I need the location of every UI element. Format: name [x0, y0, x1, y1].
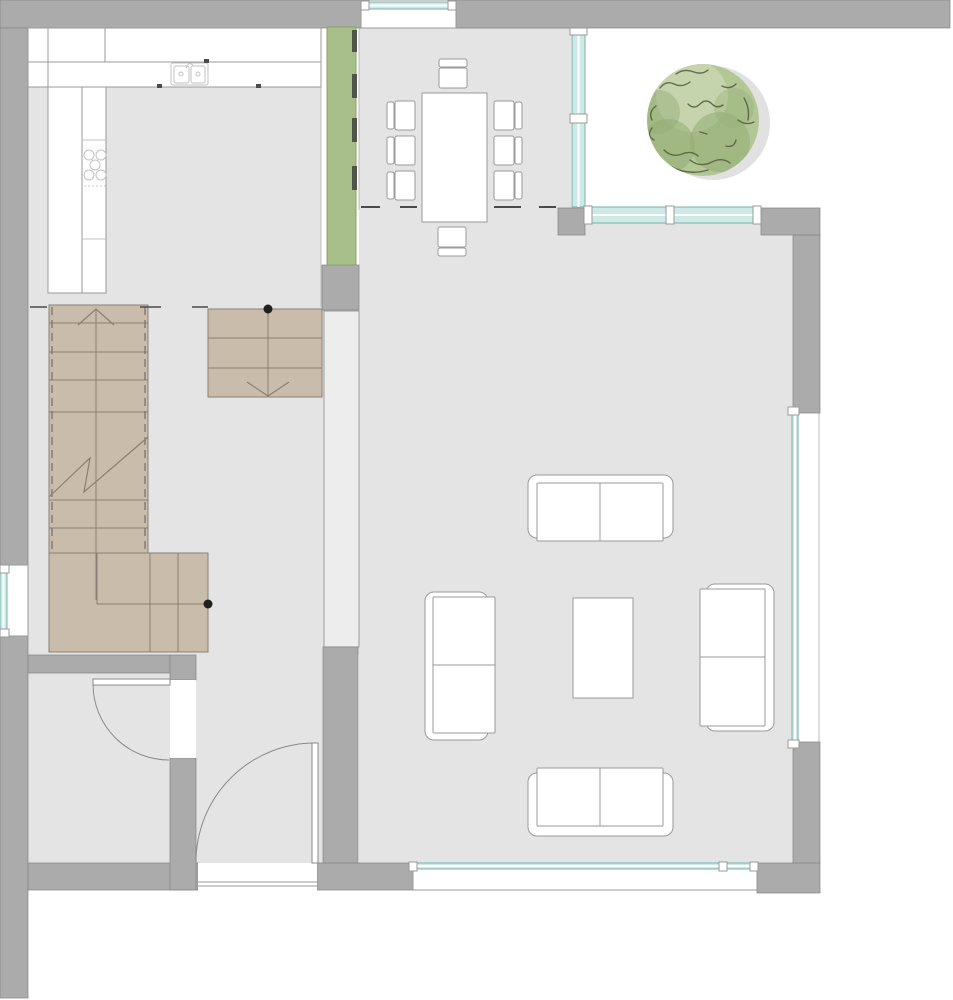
- chair-back: [438, 248, 466, 256]
- chair-seat: [395, 171, 415, 200]
- cooktop-dot: [92, 185, 94, 187]
- wall-storeroom-top: [28, 655, 170, 673]
- wall-storeroom-right-up: [170, 655, 196, 680]
- green-wall-tick: [352, 74, 357, 98]
- wall-dining-corner: [558, 208, 585, 235]
- store-room-floor: [28, 673, 170, 863]
- entry-hall-floor: [196, 655, 323, 883]
- door-storeroom-leaf: [93, 679, 170, 685]
- cooktop-dot: [104, 185, 106, 187]
- chair-seat: [395, 101, 415, 130]
- window-patio-post: [584, 206, 592, 224]
- wall-left-lower: [0, 632, 28, 998]
- green-wall-tick: [352, 30, 357, 52]
- window-left-post: [0, 565, 9, 573]
- window-left-post: [0, 629, 9, 637]
- cooktop-dot: [96, 185, 98, 187]
- walkline-dot: [204, 600, 213, 609]
- chair-seat: [494, 171, 514, 200]
- wall-green-base: [322, 265, 359, 310]
- green-wall-tick: [352, 166, 357, 190]
- glass-wall-living-post: [788, 740, 799, 748]
- green-wall-tick: [352, 118, 357, 142]
- window-top-post: [361, 1, 369, 10]
- chair-seat: [395, 136, 415, 165]
- wall-storeroom-right-low: [170, 758, 196, 890]
- dining-chair: [494, 171, 522, 200]
- sink-basin: [191, 66, 205, 83]
- wall-bottom-hall: [317, 863, 413, 890]
- dining-chair: [387, 101, 415, 130]
- kitchen-counter-row: [28, 28, 321, 62]
- green-wall: [327, 27, 356, 265]
- window-bottom-post: [409, 862, 417, 871]
- cooktop-dot: [88, 185, 90, 187]
- dining-chair: [494, 136, 522, 165]
- window-top-post: [448, 1, 456, 10]
- wall-right-upper: [793, 235, 820, 413]
- chair-seat: [438, 227, 466, 247]
- dining-chair: [438, 227, 466, 256]
- sofa-bottom: [528, 768, 673, 836]
- glass-wall-living-post: [788, 407, 799, 415]
- window-patio-post: [666, 206, 674, 224]
- chair-back: [387, 102, 394, 129]
- window-left: [0, 565, 28, 637]
- chair-seat: [494, 101, 514, 130]
- stair-landing: [49, 553, 208, 652]
- chair-back: [515, 102, 522, 129]
- wall-bottom-right-corner: [757, 863, 820, 893]
- door-entrance-leaf: [312, 743, 318, 863]
- floor-plan-canvas: [0, 0, 953, 1000]
- dining-chair: [387, 171, 415, 200]
- door-storeroom-opening: [170, 680, 196, 758]
- glass-wall-dining-post: [570, 114, 587, 123]
- window-patio-post: [753, 206, 761, 224]
- window-bottom-post: [719, 862, 727, 871]
- wall-top-right: [452, 0, 950, 28]
- sink-basin: [174, 66, 189, 83]
- chair-seat: [494, 136, 514, 165]
- coffee-table: [573, 598, 633, 698]
- counter-tick: [204, 59, 209, 63]
- wall-left-upper: [0, 28, 28, 569]
- walkline-dot: [264, 305, 273, 314]
- window-bottom: [409, 862, 758, 890]
- chair-back: [387, 137, 394, 164]
- chair-seat: [439, 68, 467, 88]
- glass-wall-dining-post: [570, 28, 587, 35]
- wall-right-lower: [793, 742, 820, 863]
- stair-run-down: [208, 309, 322, 397]
- counter-tick: [256, 84, 261, 88]
- cooktop-dot: [84, 185, 86, 187]
- chair-back: [515, 172, 522, 199]
- partition-hall-living: [324, 311, 359, 647]
- partitions: [324, 311, 359, 647]
- chair-back: [515, 137, 522, 164]
- cooktop-dot: [100, 185, 102, 187]
- window-bottom-post: [750, 862, 758, 871]
- chair-back: [439, 59, 467, 67]
- counter-tick: [157, 84, 162, 88]
- wall-hall-living-lower: [323, 647, 358, 863]
- stair-run-up: [49, 305, 148, 553]
- wall-patio-corner: [761, 208, 820, 235]
- sofa-left: [425, 592, 495, 740]
- dining-chair: [387, 136, 415, 165]
- green-feature-wall: [327, 27, 357, 265]
- chair-back: [387, 172, 394, 199]
- glass-wall-dining: [570, 28, 587, 207]
- floor-plan-page: [0, 0, 953, 1000]
- dining-table: [422, 93, 487, 222]
- dining-chair: [494, 101, 522, 130]
- dining-chair: [439, 59, 467, 88]
- kitchen-counter-column: [48, 87, 106, 293]
- sofa-right: [700, 584, 774, 731]
- window-top: [361, 0, 456, 28]
- window-patio: [584, 206, 761, 224]
- wall-top-left: [0, 0, 365, 28]
- sofa-top: [528, 475, 673, 541]
